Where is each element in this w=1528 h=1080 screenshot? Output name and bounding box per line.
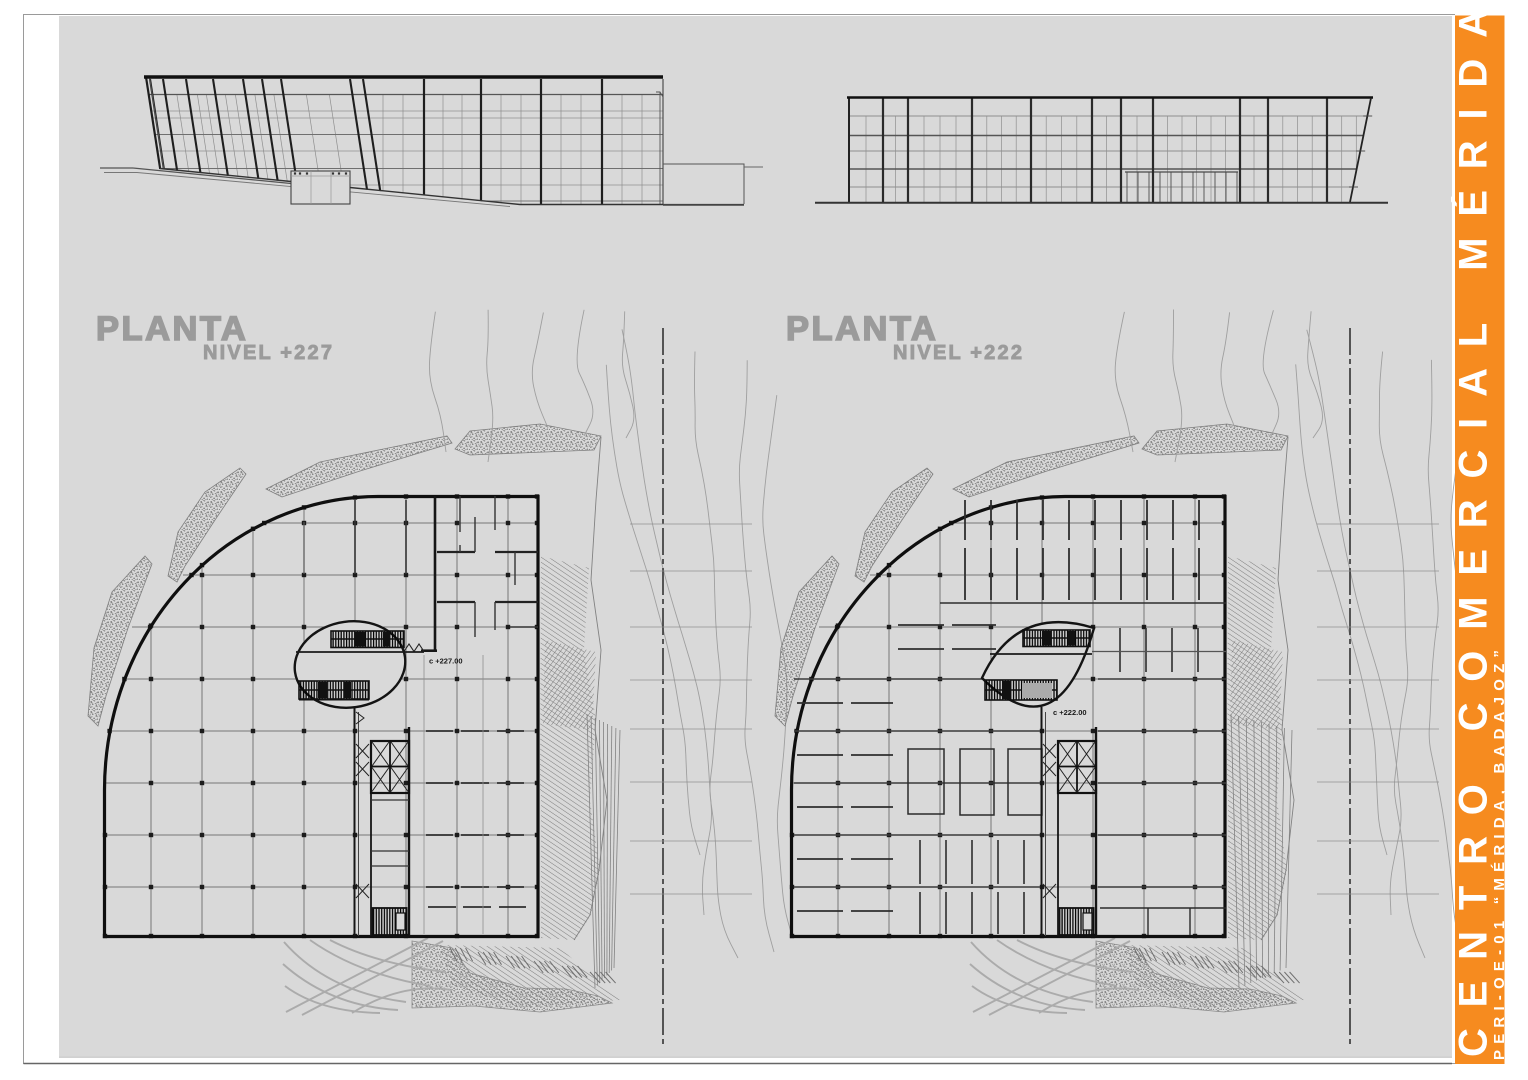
svg-text:NIVEL +227: NIVEL +227: [203, 342, 334, 364]
svg-text:NIVEL +222: NIVEL +222: [893, 342, 1024, 364]
svg-text:c +222.00: c +222.00: [1053, 708, 1087, 717]
svg-text:PERI-OE-01 “MÉRIDA, BADAJOZ”: PERI-OE-01 “MÉRIDA, BADAJOZ”: [1491, 644, 1508, 1060]
svg-text:c +227.00: c +227.00: [429, 657, 463, 666]
svg-text:CENTRO COMERCIAL MÉRIDA: CENTRO COMERCIAL MÉRIDA: [1451, 0, 1496, 1057]
